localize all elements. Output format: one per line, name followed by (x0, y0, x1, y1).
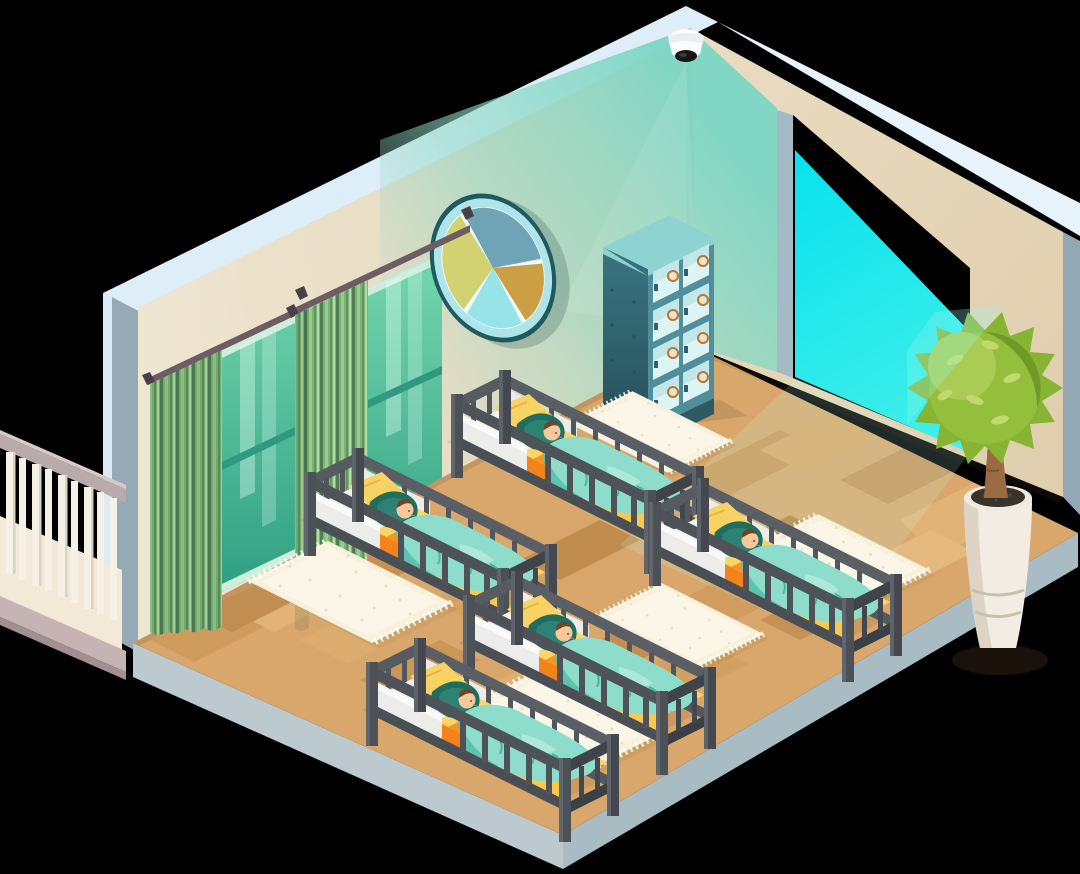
nursery-illustration: Isometric nursery room with five cribs a… (0, 0, 1080, 874)
nursery-scene-svg: Isometric nursery room with five cribs a… (0, 0, 1080, 874)
window-1 (222, 315, 295, 592)
right-wall-end-cap (1063, 232, 1080, 515)
opening-jamb (777, 110, 793, 378)
